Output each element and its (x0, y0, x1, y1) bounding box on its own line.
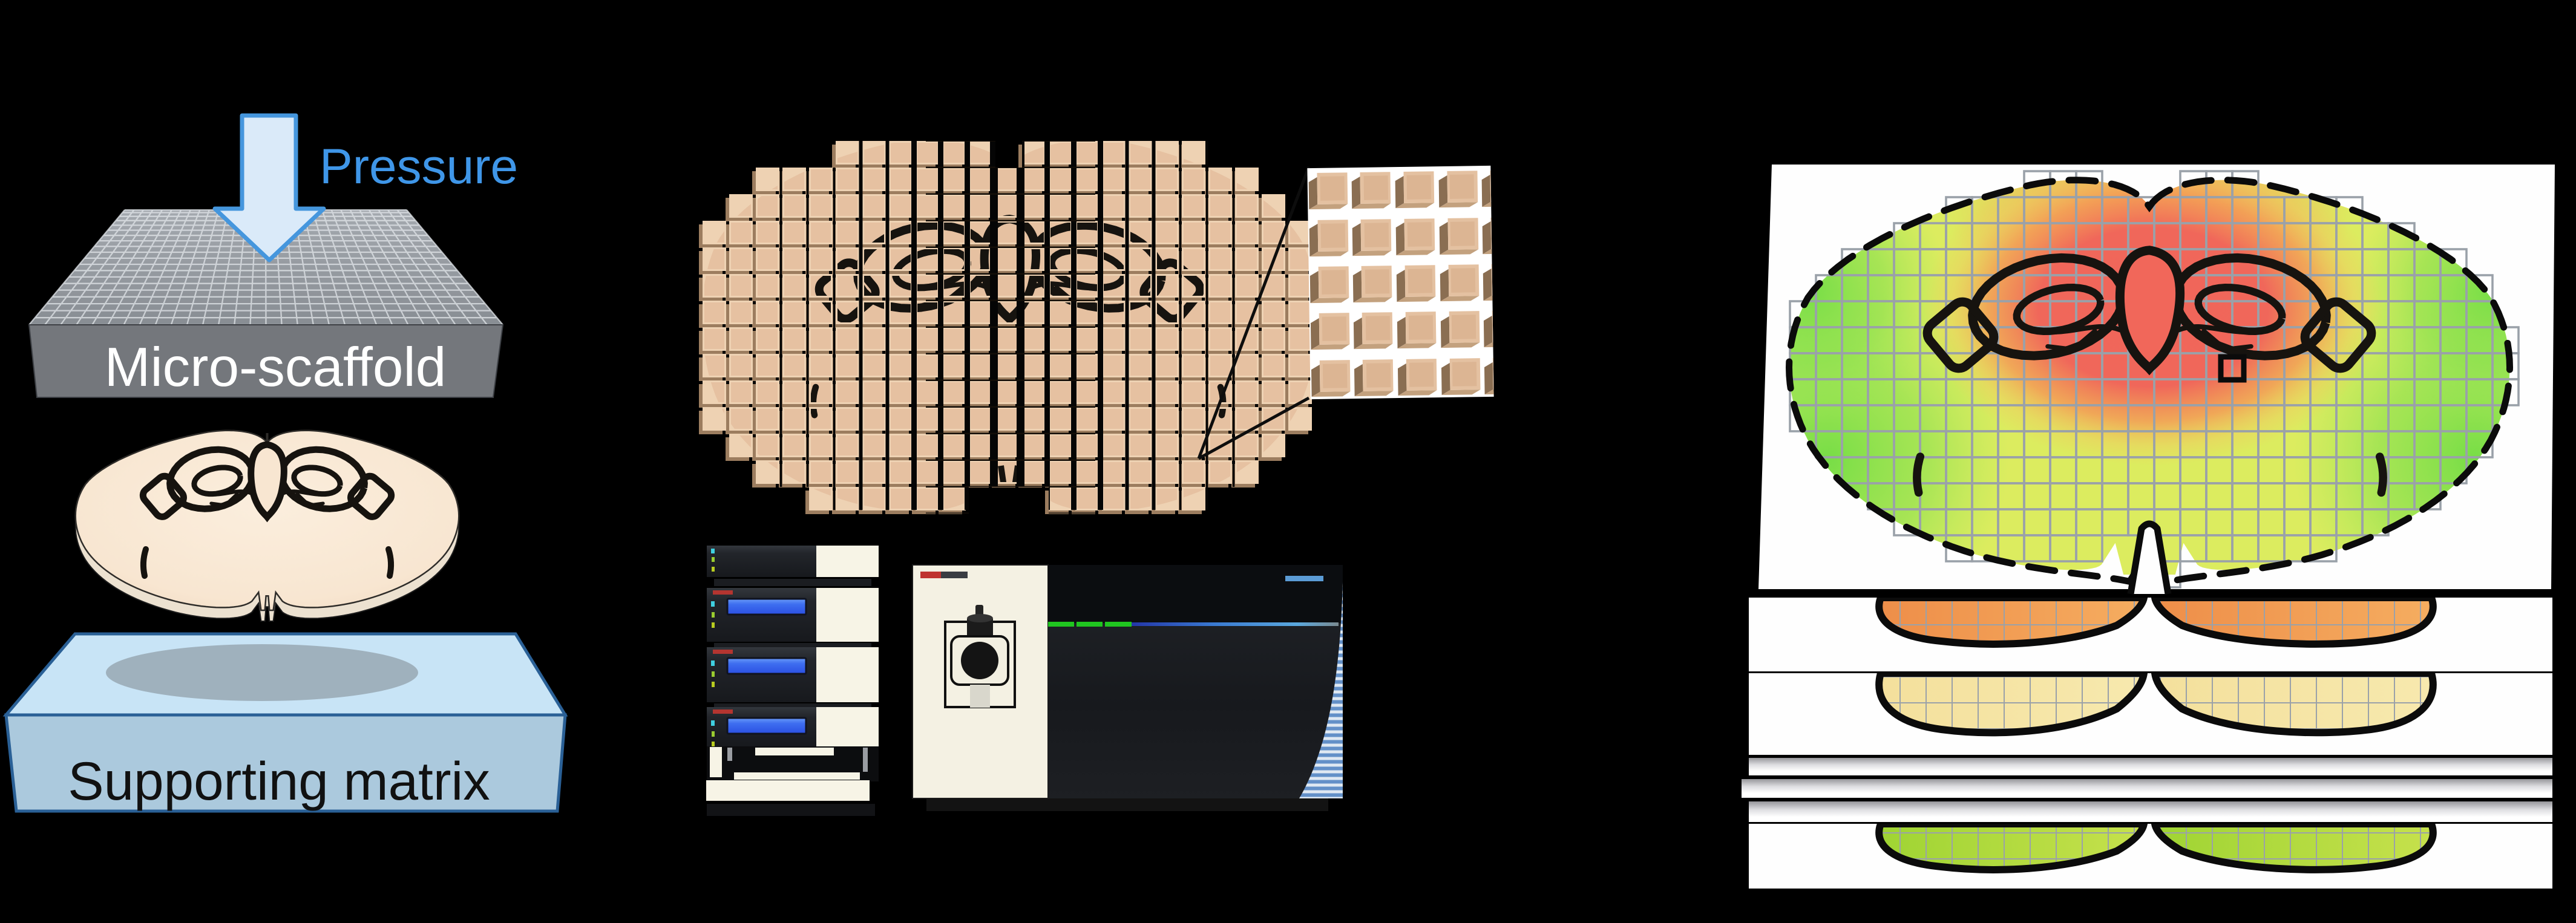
svg-text:Pressure: Pressure (320, 139, 518, 194)
svg-text:Micro-scaffold: Micro-scaffold (105, 337, 447, 398)
svg-text:Supporting matrix: Supporting matrix (68, 751, 490, 811)
